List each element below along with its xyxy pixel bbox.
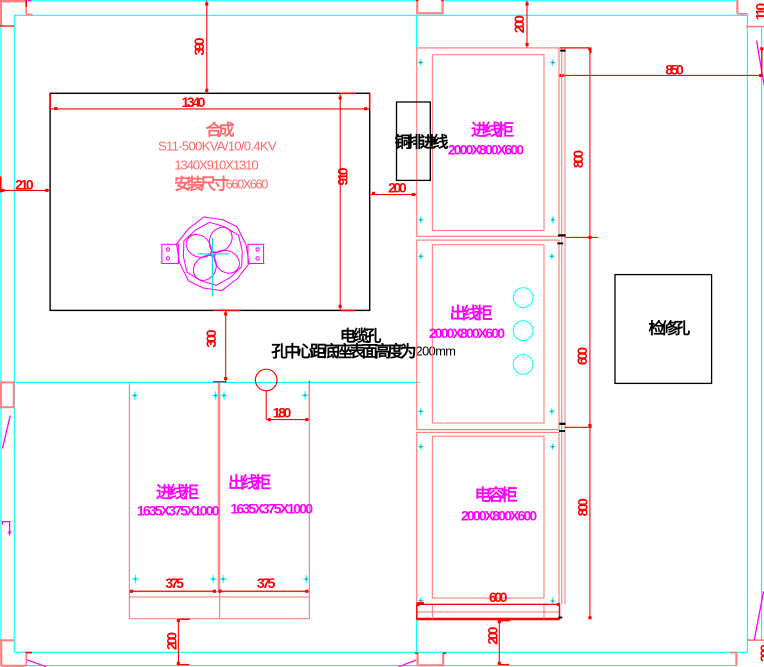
svg-text:2000X800X600: 2000X800X600	[429, 325, 505, 341]
svg-text:1635X375X1000: 1635X375X1000	[230, 500, 313, 516]
svg-text:2000X800X600: 2000X800X600	[448, 142, 524, 158]
svg-text:200: 200	[163, 632, 179, 650]
svg-text:300: 300	[203, 329, 219, 347]
svg-text:200: 200	[757, 644, 764, 662]
svg-text:210: 210	[15, 177, 34, 193]
svg-text:S11-500KVA/10/0.4KV: S11-500KVA/10/0.4KV	[158, 139, 277, 154]
svg-text:200: 200	[388, 179, 407, 195]
svg-text:800: 800	[570, 150, 586, 168]
svg-text:1340: 1340	[182, 94, 206, 110]
svg-text:600: 600	[489, 589, 508, 605]
svg-text:1635X375X1000: 1635X375X1000	[137, 502, 220, 518]
svg-text:180: 180	[273, 405, 292, 421]
svg-text:110: 110	[753, 3, 764, 21]
svg-text:910: 910	[335, 167, 351, 185]
svg-text:200: 200	[484, 626, 500, 644]
svg-text:200mm: 200mm	[416, 344, 456, 359]
svg-text:660X660: 660X660	[226, 177, 269, 192]
svg-text:375: 375	[257, 575, 276, 591]
svg-text:1340X910X1310: 1340X910X1310	[174, 157, 258, 172]
svg-text:800: 800	[575, 498, 591, 516]
svg-text:850: 850	[665, 62, 684, 78]
svg-text:2000X800X600: 2000X800X600	[461, 508, 537, 524]
svg-text:390: 390	[191, 37, 207, 55]
svg-text:200: 200	[511, 15, 527, 33]
svg-text:375: 375	[165, 575, 184, 591]
svg-text:600: 600	[574, 347, 590, 365]
